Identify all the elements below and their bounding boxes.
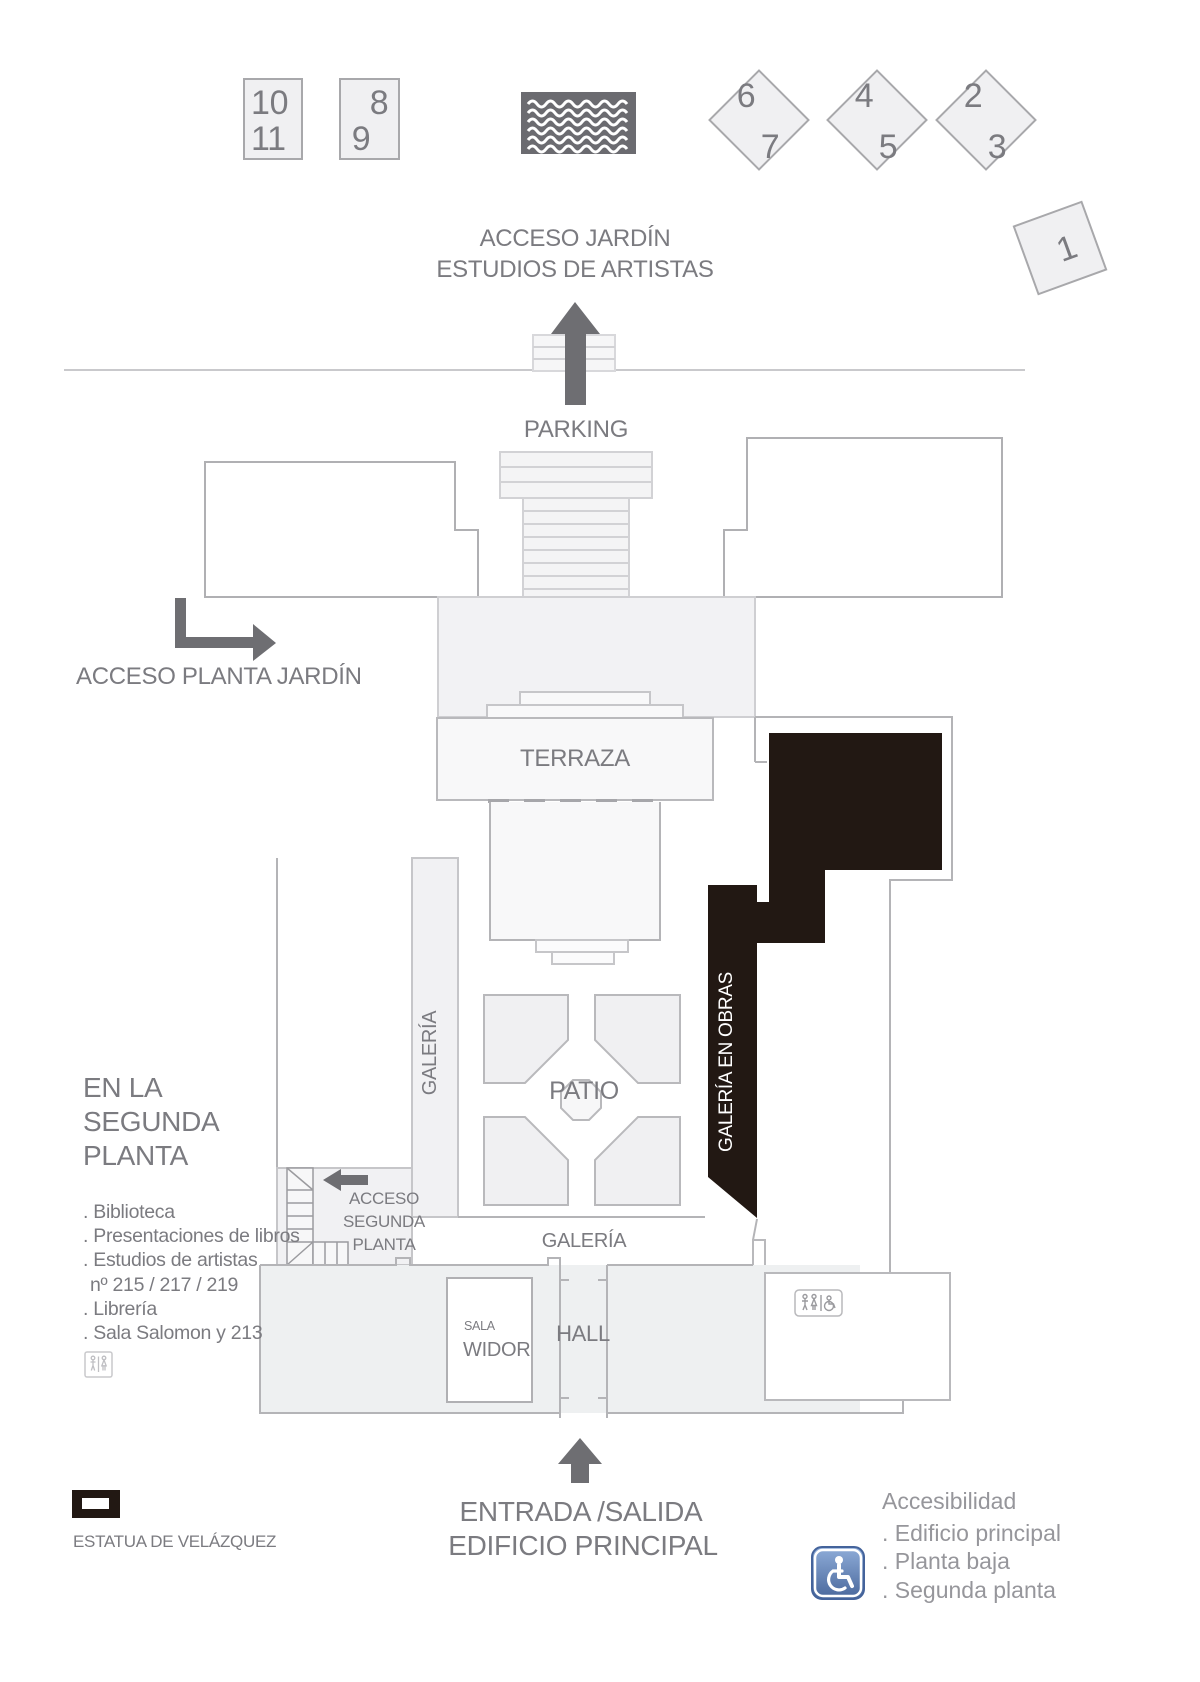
acceso-jardin-label-line2: ESTUDIOS DE ARTISTAS <box>436 256 713 283</box>
accessibility-title: Accesibilidad <box>882 1488 1016 1514</box>
legend-number-10: 10 <box>251 84 288 122</box>
second-floor-restrooms-icon <box>85 1352 112 1377</box>
legend-box-10-11: 10 11 <box>244 79 302 159</box>
statue-icon <box>72 1490 120 1518</box>
widor-label: WIDOR <box>463 1339 530 1361</box>
legend-tile-1: 1 <box>1014 202 1106 294</box>
accessibility-item: . Planta baja <box>882 1548 1010 1574</box>
floor-plan-page: 10 11 8 9 6 7 4 5 2 3 1 ACCESO JARDÍN ES… <box>0 0 1200 1682</box>
statue-label: ESTATUA DE VELÁZQUEZ <box>73 1532 276 1551</box>
second-floor-title-1: EN LA <box>83 1072 163 1103</box>
accessibility-item: . Edificio principal <box>882 1520 1061 1546</box>
acceso-segunda-label-2: SEGUNDA <box>343 1212 426 1231</box>
terraza-label: TERRAZA <box>520 745 630 772</box>
acceso-jardin-label-line1: ACCESO JARDÍN <box>480 225 671 252</box>
hall-label: HALL <box>556 1321 610 1346</box>
second-floor-item: . Sala Salomon y 213 <box>83 1322 262 1344</box>
restrooms-wing <box>765 1273 950 1400</box>
second-floor-item: nº 215 / 217 / 219 <box>90 1274 238 1296</box>
legend-number-11: 11 <box>251 120 286 158</box>
sala-label: SALA <box>464 1319 496 1333</box>
entrance-label-line2: EDIFICIO PRINCIPAL <box>448 1530 717 1561</box>
second-floor-item: . Biblioteca <box>83 1201 175 1223</box>
second-floor-title-2: SEGUNDA <box>83 1106 220 1137</box>
legend-number-8: 8 <box>370 84 389 122</box>
north-west-wing <box>205 462 478 597</box>
legend-number-6: 6 <box>737 77 756 115</box>
garden-floor-access-arrow-icon <box>175 598 276 661</box>
legend-number-2: 2 <box>964 77 983 115</box>
acceso-segunda-label-1: ACCESO <box>349 1189 419 1208</box>
acceso-segunda-label-3: PLANTA <box>352 1235 416 1254</box>
legend-number-3: 3 <box>988 128 1007 166</box>
patio-label: PATIO <box>549 1077 619 1105</box>
galeria-west-label: GALERÍA <box>418 1010 441 1096</box>
water-waves-icon <box>521 92 636 154</box>
second-floor-item: . Librería <box>83 1298 157 1320</box>
second-floor-item: . Presentaciones de libros <box>83 1225 300 1247</box>
legend-diamond-2-3: 2 3 <box>937 71 1036 170</box>
galeria-en-obras-label: GALERÍA EN OBRAS <box>716 972 737 1152</box>
wheelchair-icon <box>812 1547 864 1599</box>
galeria-south-label: GALERÍA <box>542 1229 628 1252</box>
restrooms-sign-icon <box>795 1290 842 1316</box>
legend-box-8-9: 8 9 <box>340 79 399 159</box>
legend-number-4: 4 <box>855 77 874 115</box>
second-floor-title-3: PLANTA <box>83 1140 189 1171</box>
parking-label: PARKING <box>524 416 628 443</box>
north-east-wing <box>724 438 1002 597</box>
terraza-block <box>437 692 713 964</box>
galeria-en-obras-zone <box>708 733 942 1218</box>
legend-number-5: 5 <box>879 128 898 166</box>
legend-number-7: 7 <box>761 128 780 166</box>
second-floor-item: . Estudios de artistas <box>83 1249 258 1271</box>
entrance-arrow-icon <box>558 1438 602 1483</box>
acceso-planta-jardin-label: ACCESO PLANTA JARDÍN <box>76 663 362 690</box>
upper-hall-step-outline <box>755 717 767 762</box>
entrance-label-line1: ENTRADA /SALIDA <box>460 1496 704 1527</box>
legend-number-9: 9 <box>352 120 371 158</box>
legend-diamond-4-5: 4 5 <box>828 71 927 170</box>
accessibility-item: . Segunda planta <box>882 1577 1056 1603</box>
floor-plan-svg: 10 11 8 9 6 7 4 5 2 3 1 ACCESO JARDÍN ES… <box>0 0 1200 1682</box>
legend-diamond-6-7: 6 7 <box>710 71 809 170</box>
